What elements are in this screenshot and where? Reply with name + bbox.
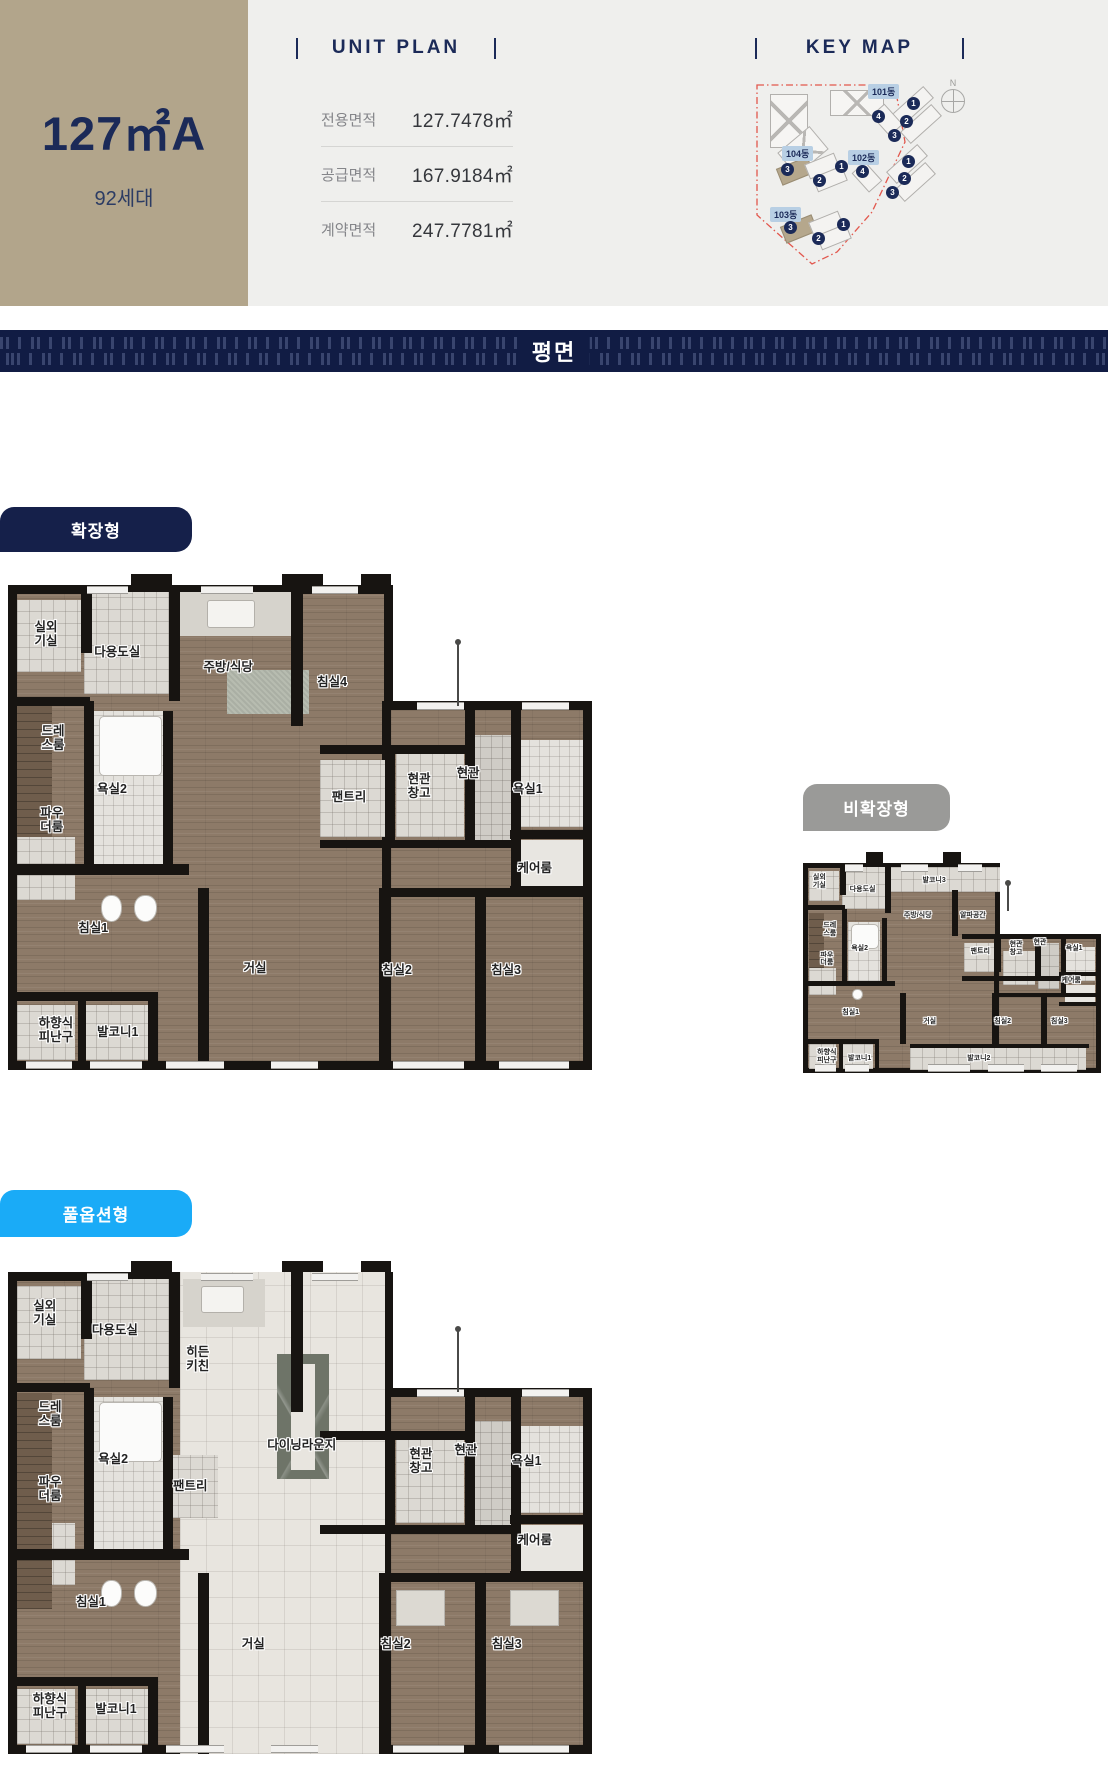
room-label: 발코니3 bbox=[923, 877, 946, 885]
building-label-101: 101동 bbox=[868, 84, 899, 99]
room-label: 발코니2 bbox=[967, 1055, 990, 1063]
window bbox=[393, 1061, 463, 1069]
window bbox=[87, 1273, 128, 1281]
room-label: 거실 bbox=[242, 1637, 265, 1651]
unit-number-badge: 4 bbox=[856, 165, 869, 178]
plan-wall bbox=[163, 711, 174, 866]
unit-number-badge: 3 bbox=[784, 221, 797, 234]
window bbox=[901, 864, 928, 872]
room-label: 욕실1 bbox=[1066, 945, 1083, 953]
plan-wall bbox=[198, 888, 210, 1070]
plan-wall bbox=[900, 993, 906, 1043]
floor-plan-non-extended: 실외 기실다용도실발코니3주방/식당알파공간드레 스룸욕실2파우 더룸팬트리현관… bbox=[803, 863, 1101, 1073]
plan-wall bbox=[379, 1573, 391, 1754]
key-map-title: KEY MAP bbox=[806, 37, 913, 59]
plan-area-wc bbox=[134, 895, 157, 921]
plan-wall bbox=[475, 888, 486, 1070]
plan-wall bbox=[839, 1039, 843, 1073]
area-value: 247.7781㎡ bbox=[412, 216, 513, 243]
plan-wall bbox=[148, 992, 157, 1070]
building-label-104: 104동 bbox=[782, 146, 813, 161]
unit-type-badge: 127㎡A 92세대 bbox=[0, 0, 248, 306]
unit-number-badge: 1 bbox=[902, 155, 915, 168]
plan-wall bbox=[379, 888, 592, 897]
plan-wall bbox=[910, 1044, 1089, 1048]
plan-wall bbox=[510, 830, 592, 839]
table-row: 계약면적 247.7781㎡ bbox=[321, 201, 513, 256]
window bbox=[90, 1745, 143, 1753]
window bbox=[499, 1061, 569, 1069]
room-label: 하향식 피난구 bbox=[39, 1016, 74, 1044]
unit-number-badge: 3 bbox=[888, 129, 901, 142]
window bbox=[958, 864, 982, 872]
title-bar-left bbox=[755, 38, 757, 59]
window bbox=[26, 1745, 73, 1753]
room-label: 하향식 피난구 bbox=[33, 1692, 68, 1720]
plan-wall bbox=[81, 585, 92, 653]
title-bar-left bbox=[296, 38, 298, 59]
room-label: 침실1 bbox=[842, 1009, 859, 1017]
building-label-102: 102동 bbox=[848, 150, 879, 165]
room-label: 케어룸 bbox=[518, 861, 553, 875]
unit-number-badge: 2 bbox=[898, 172, 911, 185]
plan-wall bbox=[78, 1677, 86, 1754]
room-label: 욕실2 bbox=[97, 782, 127, 796]
plan-wall bbox=[885, 863, 891, 913]
unit-households: 92세대 bbox=[94, 182, 153, 211]
entrance-marker-icon bbox=[457, 643, 459, 706]
room-label: 다이닝라운지 bbox=[267, 1438, 336, 1452]
plan-wall bbox=[882, 918, 887, 981]
room-label: 주방/식당 bbox=[203, 660, 252, 674]
unit-number-badge: 3 bbox=[886, 186, 899, 199]
room-label: 다용도실 bbox=[92, 1323, 138, 1337]
room-label: 현관 bbox=[454, 1443, 477, 1457]
room-label: 드레 스룸 bbox=[41, 724, 64, 752]
plan-wall bbox=[8, 697, 90, 707]
window bbox=[522, 702, 569, 710]
room-label: 알파공간 bbox=[960, 912, 986, 920]
table-row: 공급면적 167.9184㎡ bbox=[321, 146, 513, 201]
room-label: 주방/식당 bbox=[904, 912, 932, 920]
area-value: 167.9184㎡ bbox=[412, 161, 513, 188]
unit-plan-page: 127㎡A 92세대 UNIT PLAN 전용면적 127.7478㎡ 공급면적… bbox=[0, 0, 1108, 1775]
room-label: 파우 더룸 bbox=[820, 952, 833, 968]
plan-area-wc bbox=[134, 1580, 157, 1606]
room-label: 욕실1 bbox=[512, 1454, 542, 1468]
room-label: 케어룸 bbox=[1062, 977, 1081, 985]
window bbox=[271, 1745, 318, 1753]
unit-name: 127㎡A bbox=[42, 95, 206, 164]
area-table: 전용면적 127.7478㎡ 공급면적 167.9184㎡ 계약면적 247.7… bbox=[321, 92, 513, 256]
window bbox=[312, 586, 359, 594]
room-label: 파우 더룸 bbox=[40, 806, 63, 834]
area-label: 공급면적 bbox=[321, 164, 376, 185]
window bbox=[90, 1061, 143, 1069]
room-label: 현관 창고 bbox=[408, 772, 431, 800]
window bbox=[815, 1064, 836, 1072]
plan-area-bath bbox=[519, 1426, 583, 1513]
room-label: 다용도실 bbox=[94, 645, 140, 659]
plan-wall bbox=[163, 1397, 174, 1551]
unit-number-badge: 2 bbox=[900, 115, 913, 128]
room-label: 침실3 bbox=[492, 1637, 522, 1651]
window bbox=[166, 1745, 224, 1753]
unit-number-badge: 1 bbox=[837, 218, 850, 231]
plan-wall bbox=[475, 1573, 486, 1754]
plan-wall bbox=[320, 1525, 513, 1534]
plan-wall bbox=[169, 1272, 181, 1388]
window bbox=[26, 1061, 73, 1069]
plan-type-label-extended: 확장형 bbox=[0, 507, 192, 552]
entrance-marker-icon bbox=[1007, 884, 1009, 911]
room-label: 현관 창고 bbox=[1010, 941, 1023, 957]
plan-wall bbox=[803, 981, 895, 986]
plan-wall bbox=[962, 976, 1060, 980]
plan-wall-stub bbox=[361, 1261, 390, 1272]
plan-area-bed bbox=[396, 1590, 445, 1626]
room-label: 침실3 bbox=[1051, 1018, 1068, 1026]
floor-plan-extended: 실외 기실다용도실주방/식당침실4드레 스룸욕실2파우 더룸팬트리현관 창고현관… bbox=[8, 585, 592, 1070]
window bbox=[393, 1745, 463, 1753]
plan-area-sink bbox=[207, 600, 256, 629]
room-label: 침실3 bbox=[491, 963, 521, 977]
plan-wall bbox=[992, 993, 1101, 997]
room-label: 케어룸 bbox=[518, 1533, 553, 1547]
window bbox=[522, 1389, 569, 1397]
window bbox=[845, 1064, 869, 1072]
plan-area-tile bbox=[84, 1689, 148, 1744]
plan-wall bbox=[465, 1388, 476, 1533]
plan-area-tub bbox=[99, 716, 162, 776]
room-label: 히든 키친 bbox=[186, 1345, 209, 1373]
compass-circle bbox=[941, 89, 965, 113]
window bbox=[1041, 1064, 1077, 1072]
plan-area-tile bbox=[84, 592, 172, 694]
building-label-103: 103동 bbox=[770, 207, 801, 222]
floor-plan-full-option: 실외 기실다용도실히든 키친다이닝라운지드레 스룸욕실2파우 더룸팬트리현관 창… bbox=[8, 1272, 592, 1754]
plan-wall bbox=[84, 1388, 95, 1552]
plan-wall bbox=[8, 1383, 90, 1393]
plan-wall bbox=[198, 1573, 210, 1754]
plan-wall bbox=[875, 1039, 880, 1073]
room-label: 현관 bbox=[457, 766, 480, 780]
window bbox=[928, 1064, 970, 1072]
key-map-section-title: KEY MAP bbox=[755, 36, 964, 60]
plan-wall bbox=[803, 905, 845, 910]
window bbox=[988, 1064, 1024, 1072]
window bbox=[166, 1061, 224, 1069]
plan-area-sink bbox=[201, 1286, 244, 1312]
plan-type-label-non-extended: 비확장형 bbox=[803, 784, 950, 831]
room-label: 파우 더룸 bbox=[39, 1475, 62, 1503]
plan-wall-stub bbox=[282, 1261, 323, 1272]
window bbox=[201, 1273, 254, 1281]
plan-area-hall bbox=[469, 1421, 513, 1532]
unit-plan-section-title: UNIT PLAN bbox=[296, 36, 496, 60]
plan-wall bbox=[842, 909, 847, 985]
unit-number-badge: 1 bbox=[907, 97, 920, 110]
plan-wall-stub bbox=[131, 1261, 172, 1272]
plan-wall bbox=[1041, 993, 1046, 1043]
room-label: 침실2 bbox=[381, 1637, 411, 1651]
section-banner-title: 평면 bbox=[518, 335, 590, 367]
plan-wall bbox=[379, 888, 391, 1070]
room-label: 하향식 피난구 bbox=[817, 1049, 836, 1065]
plan-wall bbox=[320, 840, 513, 849]
plan-area-bed bbox=[510, 1590, 559, 1626]
plan-type-label-full-option: 풀옵션형 bbox=[0, 1190, 192, 1237]
room-label: 침실1 bbox=[78, 921, 108, 935]
plan-wall bbox=[291, 585, 303, 726]
room-label: 발코니1 bbox=[97, 1025, 138, 1039]
plan-wall bbox=[379, 1573, 592, 1582]
room-label: 드레 스룸 bbox=[39, 1400, 62, 1428]
room-label: 침실4 bbox=[317, 675, 347, 689]
plan-wall-stub bbox=[943, 852, 961, 863]
plan-wall bbox=[995, 934, 1001, 972]
window bbox=[499, 1745, 569, 1753]
window bbox=[845, 864, 863, 872]
room-label: 침실1 bbox=[76, 1595, 106, 1609]
plan-wall-stub bbox=[282, 574, 323, 585]
room-label: 거실 bbox=[244, 961, 267, 975]
room-label: 침실2 bbox=[382, 963, 412, 977]
window bbox=[312, 1273, 359, 1281]
room-label: 발코니1 bbox=[95, 1702, 136, 1716]
plan-wall bbox=[385, 1431, 396, 1527]
table-row: 전용면적 127.7478㎡ bbox=[321, 92, 513, 146]
window bbox=[87, 586, 128, 594]
key-map: 101동 104동 102동 103동 N 14233121423312 bbox=[742, 72, 1002, 277]
plan-wall bbox=[78, 992, 86, 1070]
plan-area-hall bbox=[469, 735, 513, 847]
room-label: 실외 기실 bbox=[813, 874, 826, 890]
room-label: 드레 스룸 bbox=[823, 922, 836, 938]
section-banner: 평면 bbox=[0, 330, 1108, 372]
room-label: 팬트리 bbox=[173, 1479, 208, 1493]
plan-wall bbox=[8, 864, 189, 875]
room-label: 실외 기실 bbox=[34, 620, 57, 648]
room-label: 현관 창고 bbox=[409, 1447, 432, 1475]
plan-wall bbox=[1059, 1002, 1101, 1006]
area-label: 전용면적 bbox=[321, 109, 376, 130]
room-label: 욕실2 bbox=[851, 945, 868, 953]
plan-wall bbox=[510, 1515, 592, 1524]
plan-wall bbox=[169, 585, 181, 701]
title-bar-right bbox=[962, 38, 964, 59]
unit-number-badge: 3 bbox=[781, 163, 794, 176]
unit-number-badge: 4 bbox=[872, 110, 885, 123]
window bbox=[201, 586, 254, 594]
plan-area-hall bbox=[1038, 943, 1059, 989]
room-label: 욕실2 bbox=[98, 1452, 128, 1466]
compass-north-label: N bbox=[938, 78, 968, 88]
plan-wall-stub bbox=[866, 852, 884, 863]
plan-wall bbox=[148, 1677, 157, 1754]
plan-wall bbox=[385, 745, 396, 842]
plan-wall bbox=[81, 1272, 92, 1339]
plan-wall-stub bbox=[361, 574, 390, 585]
room-label: 다용도실 bbox=[850, 886, 876, 894]
unit-number-badge: 2 bbox=[812, 232, 825, 245]
plan-wall bbox=[291, 1272, 303, 1412]
plan-area-wc bbox=[101, 895, 122, 921]
room-label: 팬트리 bbox=[332, 790, 367, 804]
header-info-panel: UNIT PLAN 전용면적 127.7478㎡ 공급면적 167.9184㎡ … bbox=[248, 0, 1108, 306]
room-label: 실외 기실 bbox=[33, 1299, 56, 1327]
room-label: 현관 bbox=[1033, 939, 1046, 947]
plan-area-tile bbox=[964, 943, 994, 972]
plan-wall bbox=[952, 890, 958, 936]
unit-plan-title: UNIT PLAN bbox=[332, 37, 460, 59]
room-label: 욕실1 bbox=[513, 782, 543, 796]
unit-number-badge: 1 bbox=[835, 160, 848, 173]
entrance-marker-icon bbox=[457, 1330, 459, 1393]
room-label: 발코니1 bbox=[848, 1055, 871, 1063]
room-label: 침실2 bbox=[994, 1018, 1011, 1026]
room-label: 팬트리 bbox=[971, 948, 990, 956]
window bbox=[271, 1061, 318, 1069]
unit-number-badge: 2 bbox=[813, 174, 826, 187]
title-bar-right bbox=[494, 38, 496, 59]
plan-wall bbox=[84, 701, 95, 866]
plan-wall bbox=[8, 1549, 189, 1560]
area-value: 127.7478㎡ bbox=[412, 106, 513, 133]
compass-icon: N bbox=[938, 78, 968, 113]
plan-wall-stub bbox=[131, 574, 172, 585]
area-label: 계약면적 bbox=[321, 219, 376, 240]
room-label: 거실 bbox=[923, 1018, 936, 1026]
